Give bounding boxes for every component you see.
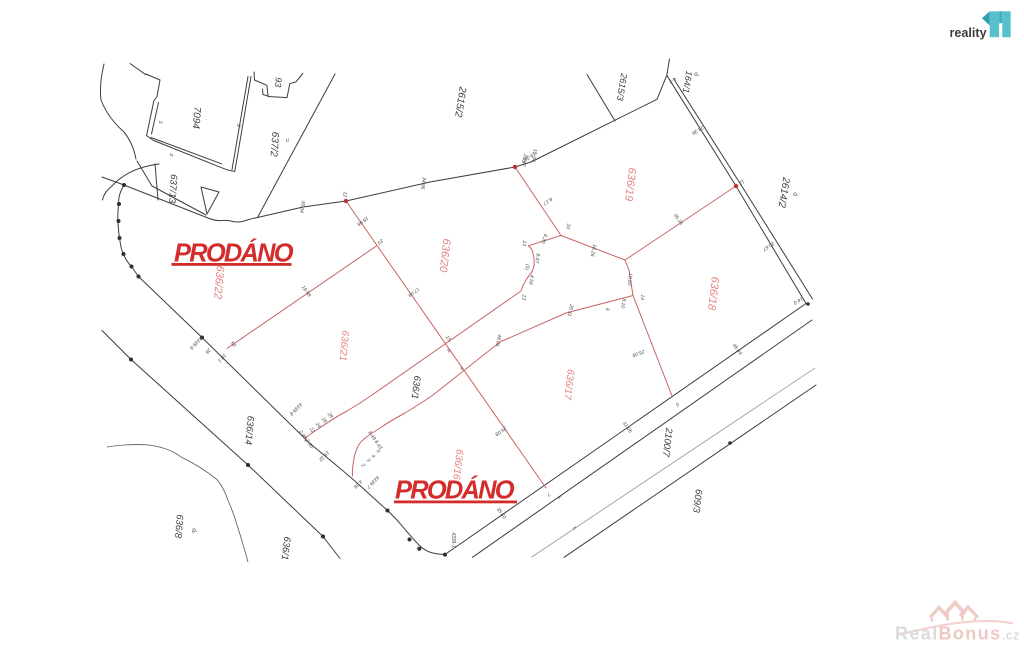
svg-text:.cz: .cz xyxy=(1002,628,1020,643)
svg-text:637/13: 637/13 xyxy=(166,174,179,204)
svg-text:Real: Real xyxy=(895,624,939,644)
svg-text:7094: 7094 xyxy=(190,106,203,129)
svg-text:636/8: 636/8 xyxy=(172,514,185,539)
svg-text:.: . xyxy=(205,116,206,122)
svg-text:14: 14 xyxy=(639,294,646,300)
svg-text:p.: p. xyxy=(192,527,198,534)
svg-text:reality: reality xyxy=(950,26,987,40)
svg-text:4339-1: 4339-1 xyxy=(450,532,456,548)
svg-text:PRODÁNO: PRODÁNO xyxy=(395,476,515,505)
svg-text:=: = xyxy=(283,138,290,143)
svg-text:93: 93 xyxy=(273,77,284,88)
svg-text:o.: o. xyxy=(793,191,799,198)
svg-text:637/2: 637/2 xyxy=(268,131,281,157)
svg-text:Bonus: Bonus xyxy=(939,624,1002,644)
svg-text:o.: o. xyxy=(694,71,700,78)
